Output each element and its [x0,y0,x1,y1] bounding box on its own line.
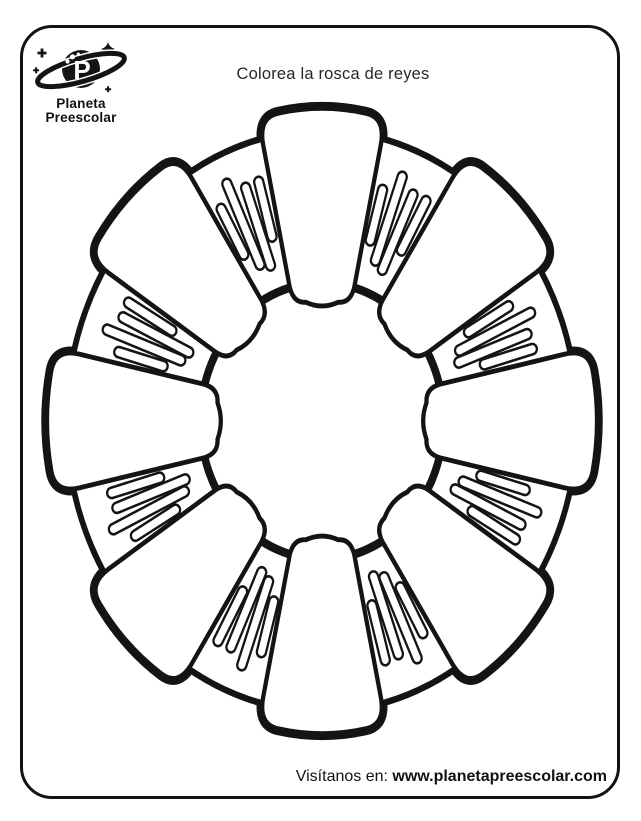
footer-label: Visítanos en: [296,768,393,785]
website-url: www.planetapreescolar.com [392,768,607,785]
planet-dot [65,59,69,63]
footer-text: Visítanos en: www.planetapreescolar.com [296,768,607,786]
rosca-coloring-svg [18,95,626,750]
rosca-illustration [18,95,626,750]
planet-dot [70,54,75,59]
page-title: Colorea la rosca de reyes [26,65,640,84]
rosca-group [47,108,597,733]
planet-dot [77,53,80,56]
plus-sparkle-icon [105,86,111,92]
plus-sparkle-icon [38,49,47,58]
